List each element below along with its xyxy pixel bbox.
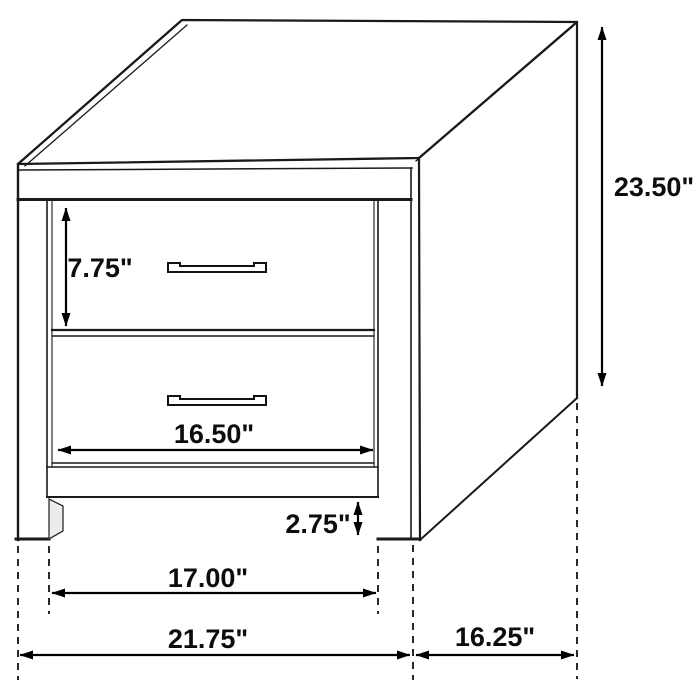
left-leg-inner-face (49, 499, 63, 539)
dim-label-base-clearance: 2.75" (285, 509, 350, 539)
drawer-1-handle (168, 263, 266, 272)
corner-outer-edge (419, 158, 420, 540)
top-edge-inner-left (25, 25, 187, 166)
dim-label-leg-span: 17.00" (168, 563, 248, 593)
nightstand-dimension-diagram: 7.75" 23.50" 16.50" 2.75" 17.00" 21.75" … (0, 0, 700, 700)
dim-depth: 16.25" (416, 622, 574, 655)
dim-base-clearance: 2.75" (285, 502, 358, 539)
dim-overall-width: 21.75" (20, 624, 410, 655)
dim-label-depth: 16.25" (455, 622, 535, 652)
dim-label-overall-height: 23.50" (614, 172, 694, 202)
dim-drawer-width: 16.50" (58, 419, 373, 450)
dim-drawer-height: 7.75" (66, 208, 133, 326)
dim-label-drawer-width: 16.50" (174, 419, 254, 449)
top-band-bottom (18, 168, 412, 170)
dim-leg-span: 17.00" (52, 563, 376, 593)
diagram-canvas: 7.75" 23.50" 16.50" 2.75" 17.00" 21.75" … (0, 0, 700, 700)
side-bottom-edge (420, 398, 577, 540)
top-edge-inner-right (416, 27, 572, 161)
top-panel (18, 20, 577, 164)
dim-label-overall-width: 21.75" (168, 624, 248, 654)
dim-label-drawer-height: 7.75" (67, 253, 132, 283)
dim-overall-height: 23.50" (602, 27, 694, 386)
drawer-2-handle (168, 396, 266, 405)
